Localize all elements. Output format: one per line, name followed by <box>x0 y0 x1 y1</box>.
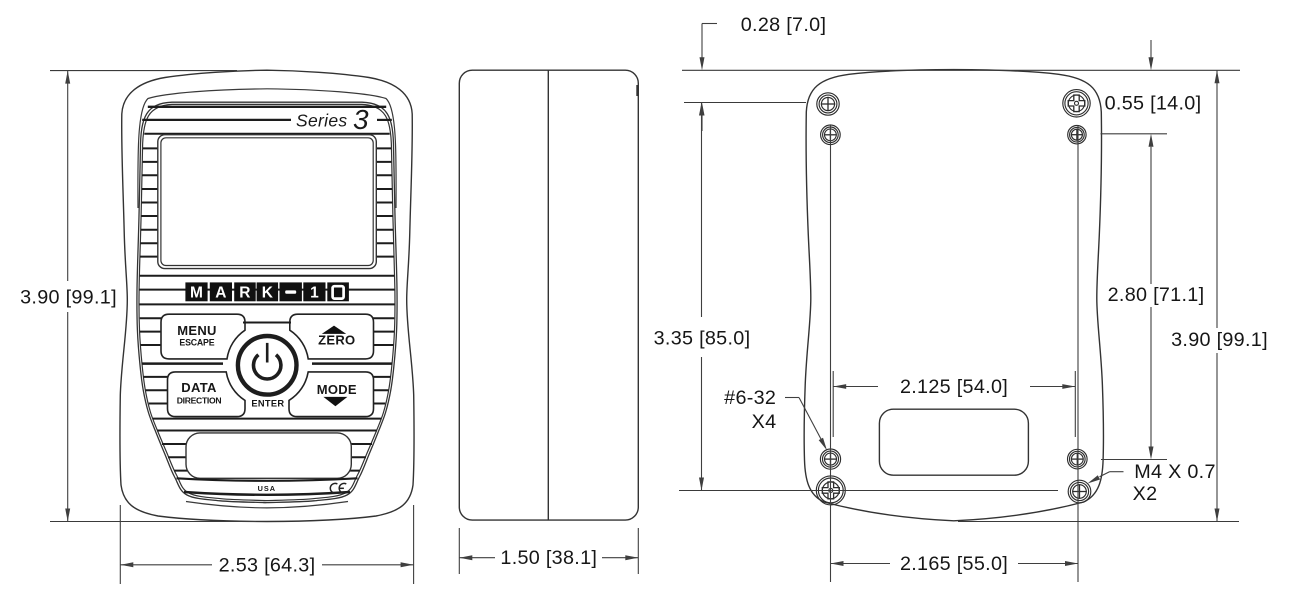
svg-text:1: 1 <box>310 284 319 301</box>
svg-text:R: R <box>239 284 250 301</box>
svg-text:3: 3 <box>353 104 369 135</box>
svg-text:2.165 [55.0]: 2.165 [55.0] <box>900 553 1008 575</box>
svg-text:0.55 [14.0]: 0.55 [14.0] <box>1105 92 1202 114</box>
svg-text:2.125 [54.0]: 2.125 [54.0] <box>900 376 1008 398</box>
svg-text:MODE: MODE <box>317 382 357 397</box>
svg-text:DATA: DATA <box>181 380 217 395</box>
svg-text:X2: X2 <box>1133 483 1158 505</box>
svg-text:A: A <box>215 284 226 301</box>
svg-text:ENTER: ENTER <box>251 399 284 409</box>
svg-text:1.50 [38.1]: 1.50 [38.1] <box>500 547 597 569</box>
svg-text:M4 X 0.7: M4 X 0.7 <box>1134 461 1216 483</box>
svg-text:ZERO: ZERO <box>318 333 355 348</box>
svg-text:USA: USA <box>258 484 276 493</box>
svg-text:#6-32: #6-32 <box>724 387 776 409</box>
svg-text:3.90 [99.1]: 3.90 [99.1] <box>1171 329 1268 351</box>
svg-text:3.35 [85.0]: 3.35 [85.0] <box>654 327 751 349</box>
svg-text:MENU: MENU <box>177 323 216 338</box>
svg-text:2.53 [64.3]: 2.53 [64.3] <box>219 554 316 576</box>
svg-text:X4: X4 <box>752 411 777 433</box>
svg-text:2.80 [71.1]: 2.80 [71.1] <box>1108 284 1205 306</box>
svg-text:3.90 [99.1]: 3.90 [99.1] <box>20 287 117 309</box>
svg-text:ESCAPE: ESCAPE <box>179 338 214 348</box>
svg-text:0.28 [7.0]: 0.28 [7.0] <box>741 14 827 36</box>
svg-text:K: K <box>262 284 274 301</box>
svg-text:Series: Series <box>296 111 347 131</box>
svg-text:M: M <box>190 284 203 301</box>
svg-text:DIRECTION: DIRECTION <box>177 396 222 406</box>
